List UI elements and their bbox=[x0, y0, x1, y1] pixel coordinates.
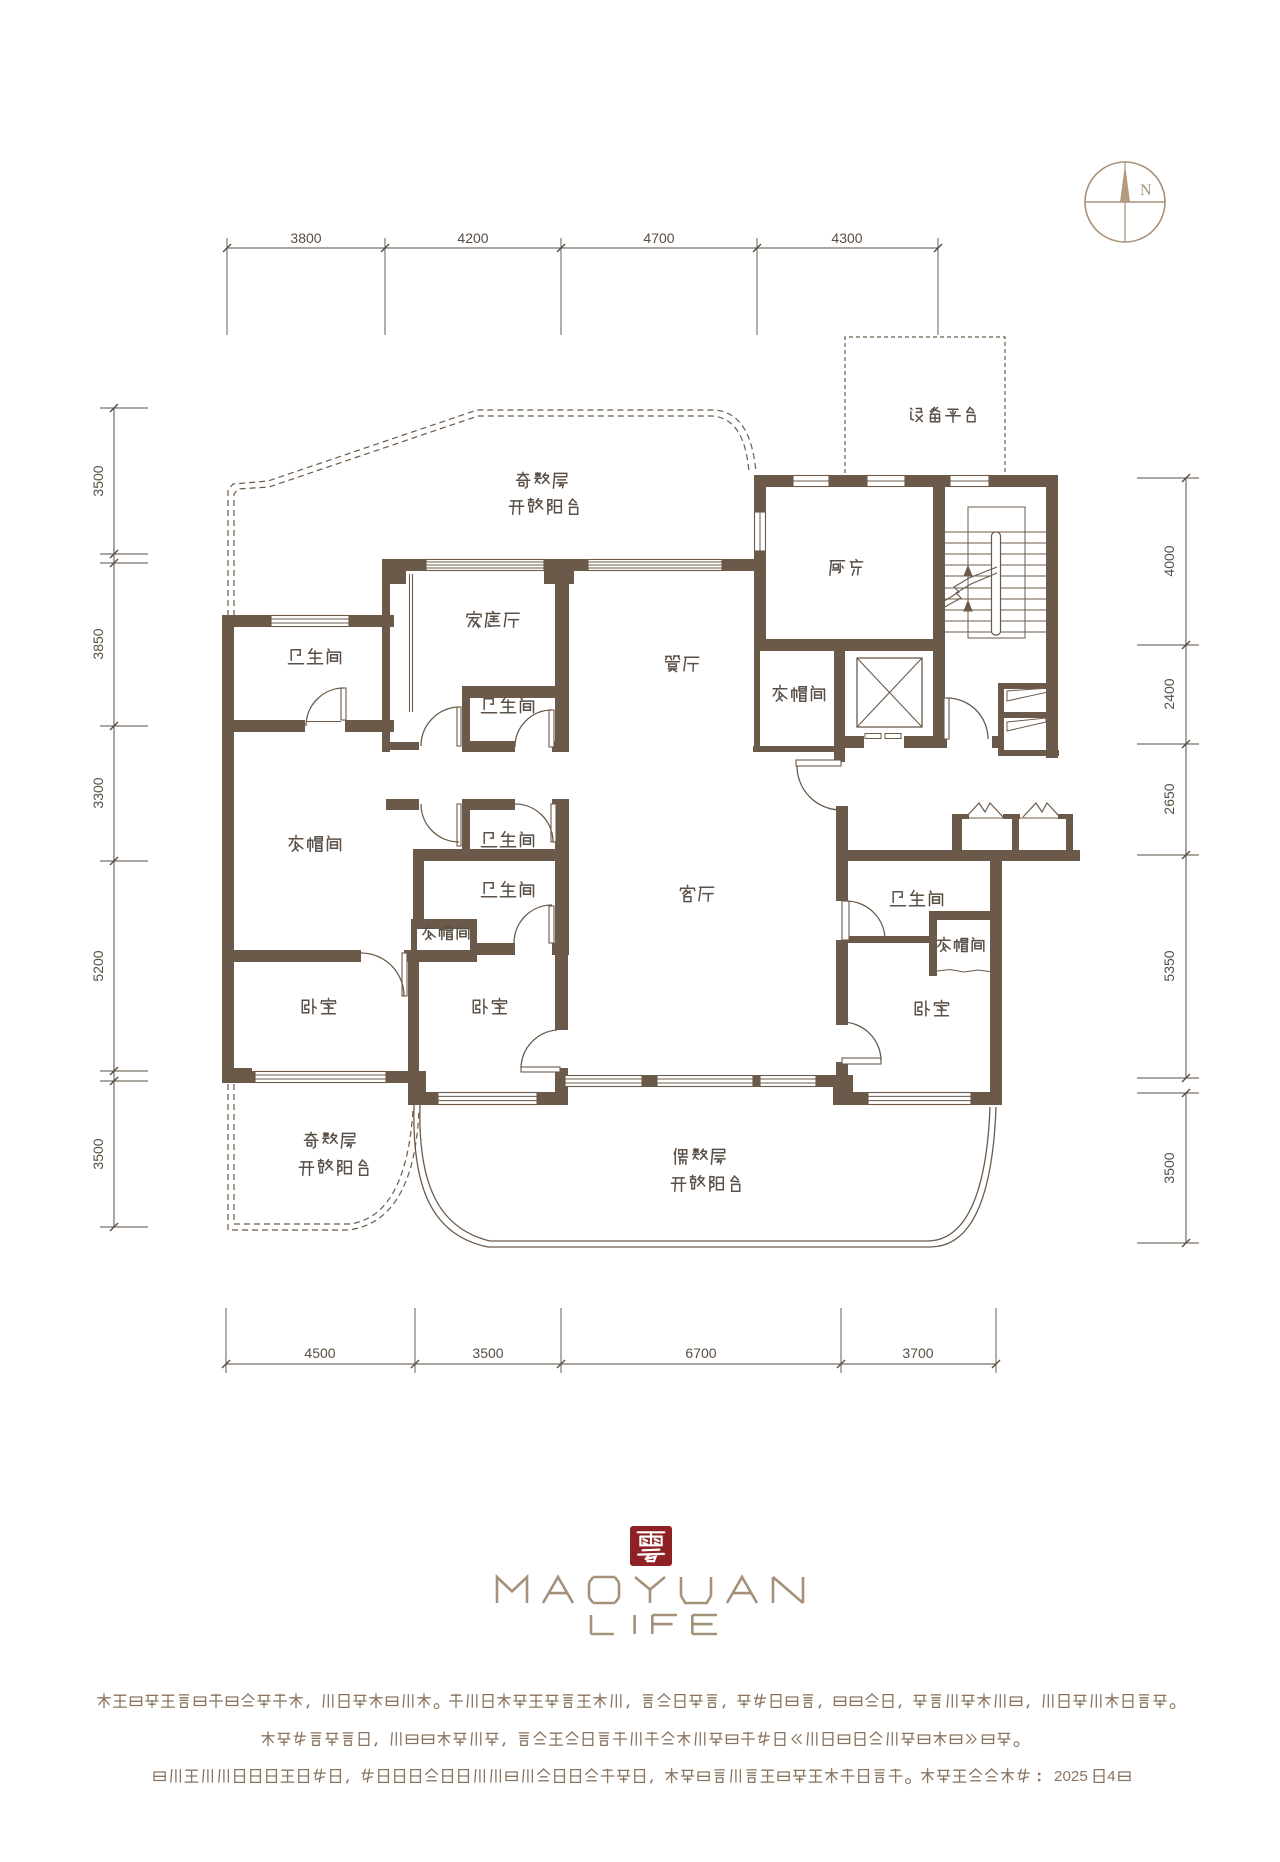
svg-text:2025: 2025 bbox=[1054, 1768, 1088, 1785]
svg-text:3500: 3500 bbox=[1161, 1152, 1177, 1183]
svg-text:4300: 4300 bbox=[831, 230, 862, 246]
svg-text:4000: 4000 bbox=[1161, 545, 1177, 576]
svg-text:2650: 2650 bbox=[1161, 783, 1177, 814]
svg-text:3500: 3500 bbox=[90, 465, 106, 496]
svg-text:3850: 3850 bbox=[90, 628, 106, 659]
svg-text:6700: 6700 bbox=[685, 1345, 716, 1361]
svg-text:5350: 5350 bbox=[1161, 950, 1177, 981]
svg-text:3700: 3700 bbox=[902, 1345, 933, 1361]
svg-text:2400: 2400 bbox=[1161, 678, 1177, 709]
svg-text:4: 4 bbox=[1107, 1768, 1115, 1785]
svg-text:4500: 4500 bbox=[304, 1345, 335, 1361]
svg-text:N: N bbox=[1140, 182, 1152, 199]
svg-text:4700: 4700 bbox=[643, 230, 674, 246]
svg-text:4200: 4200 bbox=[457, 230, 488, 246]
svg-text:5200: 5200 bbox=[90, 950, 106, 981]
svg-text:3300: 3300 bbox=[90, 777, 106, 808]
svg-text:3500: 3500 bbox=[472, 1345, 503, 1361]
svg-text:3500: 3500 bbox=[90, 1138, 106, 1169]
svg-text:3800: 3800 bbox=[290, 230, 321, 246]
